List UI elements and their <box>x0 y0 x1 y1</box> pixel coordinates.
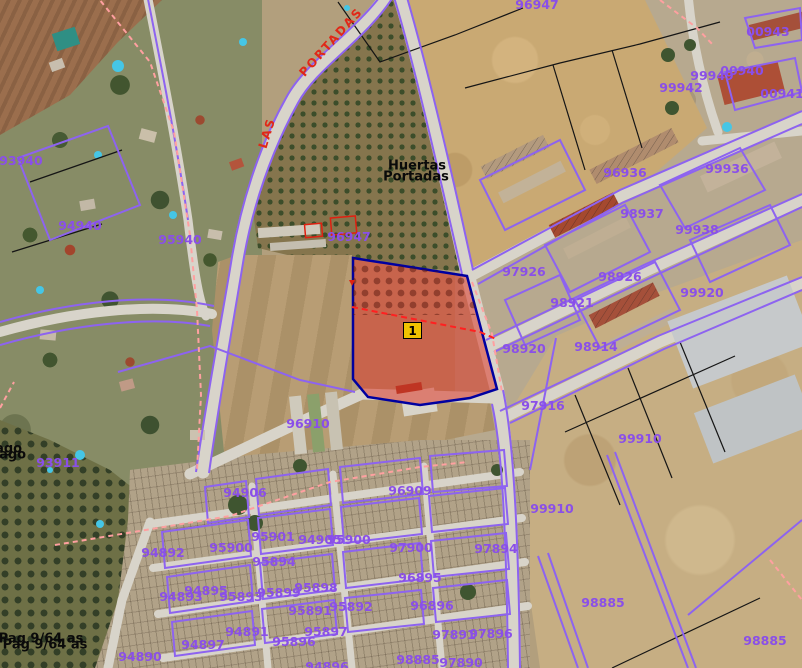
map-overlay <box>0 0 802 668</box>
parcel-marker-badge: 1 <box>403 322 422 339</box>
map-canvas[interactable]: 9694700943999490094000941999429394096936… <box>0 0 802 668</box>
parcel-marker-label: 1 <box>408 324 416 338</box>
